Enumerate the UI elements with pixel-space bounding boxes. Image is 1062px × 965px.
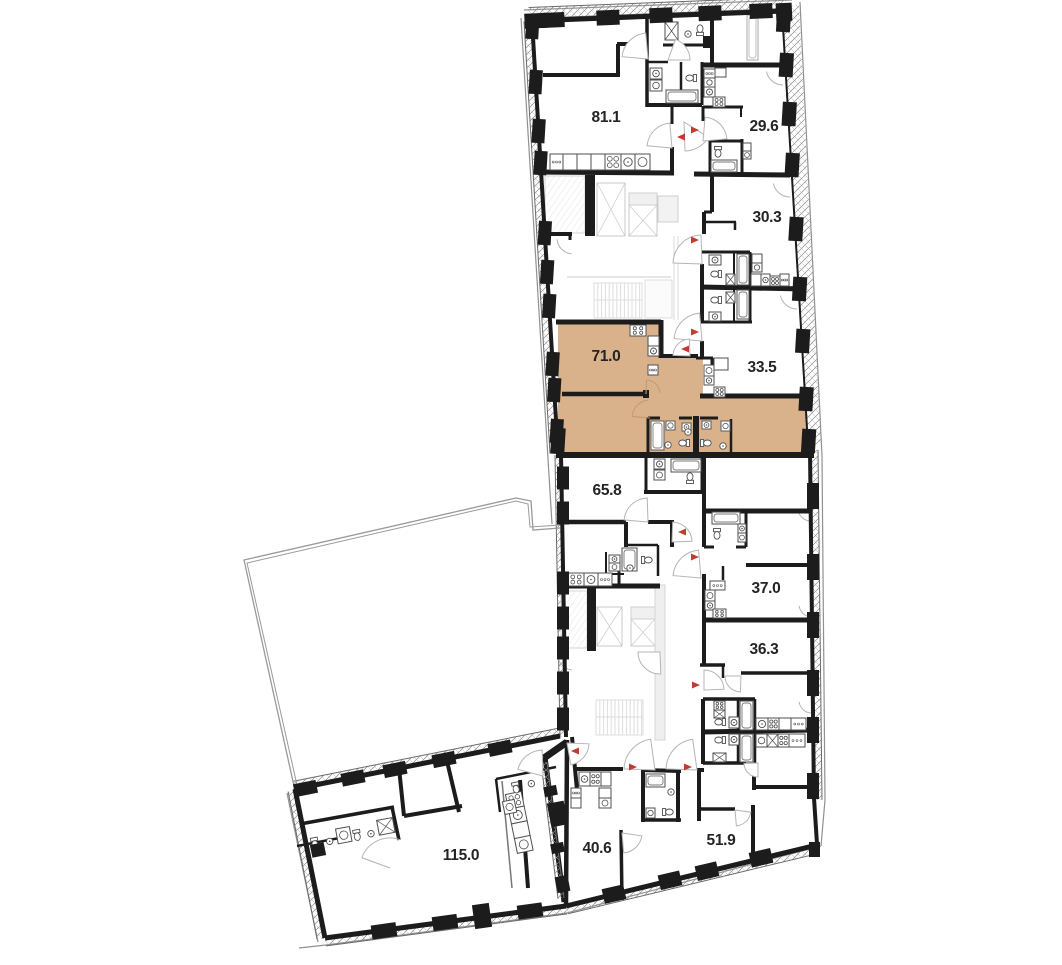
svg-text:65.8: 65.8 <box>593 482 623 499</box>
svg-text:37.0: 37.0 <box>752 580 781 597</box>
svg-text:30.3: 30.3 <box>753 209 783 226</box>
svg-text:115.0: 115.0 <box>443 847 479 864</box>
svg-text:29.6: 29.6 <box>750 118 780 135</box>
svg-text:51.9: 51.9 <box>707 832 737 849</box>
svg-text:33.5: 33.5 <box>748 359 778 376</box>
svg-text:36.3: 36.3 <box>750 641 780 658</box>
svg-text:40.6: 40.6 <box>583 840 613 857</box>
svg-text:71.0: 71.0 <box>592 348 621 365</box>
svg-text:81.1: 81.1 <box>592 109 622 126</box>
